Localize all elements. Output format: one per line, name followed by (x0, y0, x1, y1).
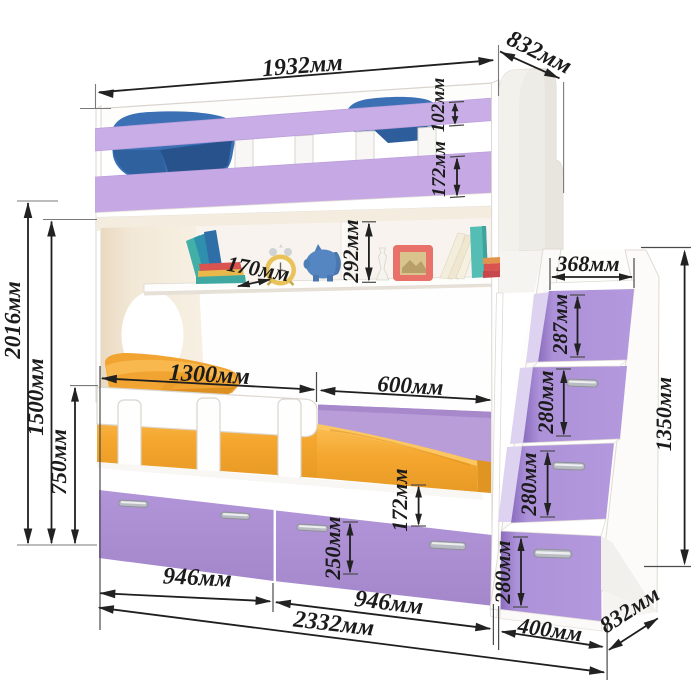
svg-text:946мм: 946мм (162, 563, 232, 592)
svg-text:1500мм: 1500мм (23, 358, 48, 436)
svg-text:280мм: 280мм (516, 452, 541, 516)
svg-text:172мм: 172мм (429, 141, 450, 197)
svg-text:1350мм: 1350мм (651, 377, 676, 451)
svg-text:1300мм: 1300мм (168, 360, 250, 390)
svg-text:287мм: 287мм (548, 294, 572, 355)
svg-text:368мм: 368мм (555, 251, 619, 276)
svg-text:750мм: 750мм (46, 429, 71, 495)
svg-text:292мм: 292мм (338, 219, 363, 283)
svg-text:280мм: 280мм (490, 540, 515, 604)
svg-text:280мм: 280мм (533, 370, 558, 434)
svg-text:172мм: 172мм (387, 468, 412, 531)
svg-text:2016мм: 2016мм (0, 281, 25, 360)
svg-text:250мм: 250мм (320, 516, 345, 580)
svg-text:102мм: 102мм (428, 78, 449, 133)
svg-text:600мм: 600мм (377, 371, 444, 400)
